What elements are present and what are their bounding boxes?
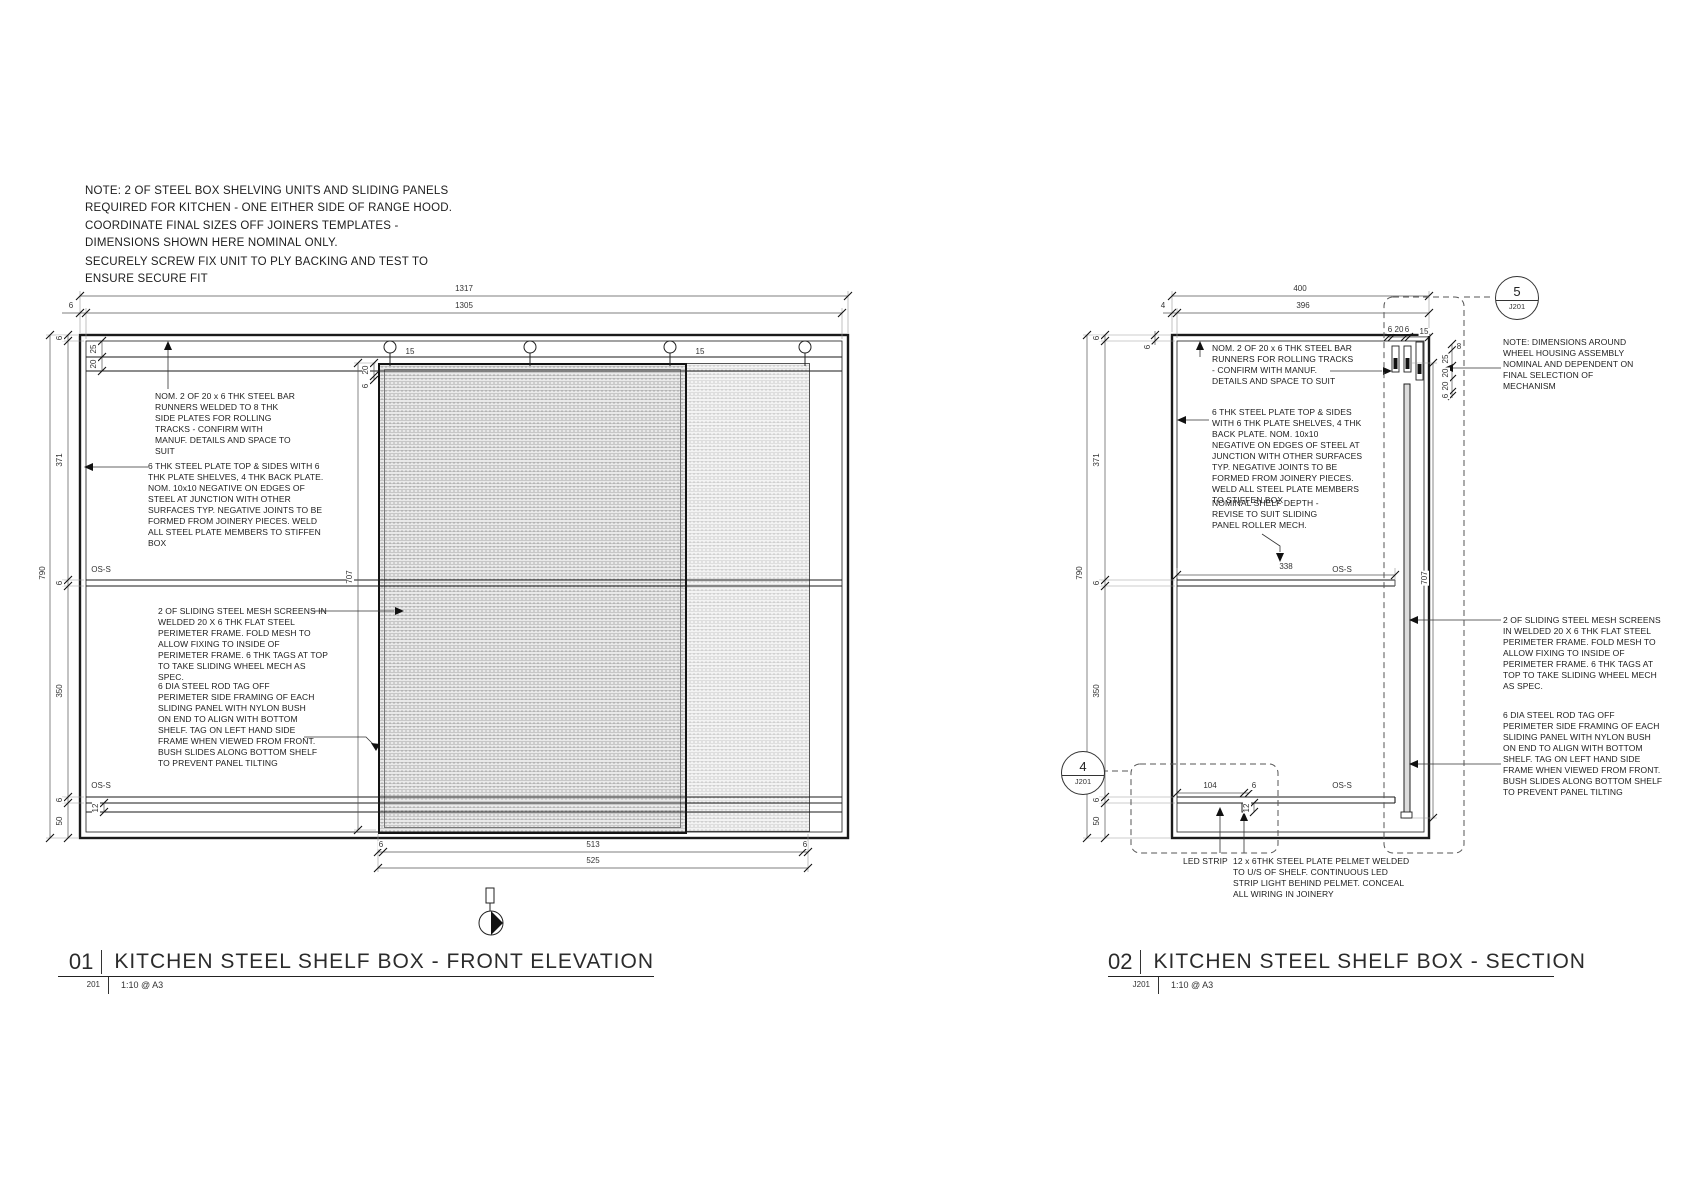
callout-number: 5 [1496, 285, 1538, 301]
drawing-scale: 1:10 @ A3 [1159, 977, 1213, 994]
annotation-rod-tag-section: 6 DIA STEEL ROD TAG OFF PERIMETER SIDE F… [1503, 710, 1665, 798]
panel-bottom-tag [1401, 812, 1412, 818]
title-block-elevation: 01 KITCHEN STEEL SHELF BOX - FRONT ELEVA… [58, 950, 654, 994]
drawing-linework [0, 0, 1684, 1191]
title-block-section: 02 KITCHEN STEEL SHELF BOX - SECTION J20… [1108, 950, 1554, 994]
annotation-mesh-screens-section: 2 OF SLIDING STEEL MESH SCREENS IN WELDE… [1503, 615, 1661, 692]
annotation-shelf-depth: NOMINAL SHELF DEPTH - REVISE TO SUIT SLI… [1212, 498, 1327, 531]
section-marker-fill [491, 911, 503, 935]
general-note: NOTE: 2 OF STEEL BOX SHELVING UNITS AND … [85, 183, 470, 252]
dim-ticks-left [46, 292, 852, 872]
roller-wheels [384, 341, 811, 366]
dim-lines-left [50, 296, 848, 868]
ext-lines-left [46, 291, 848, 872]
drawing-number: 01 [58, 950, 102, 974]
detail-callout-5: 5 J201 [1495, 276, 1539, 320]
annotation-runners: NOM. 2 OF 20 x 6 THK STEEL BAR RUNNERS W… [155, 391, 295, 457]
annotation-rod-tag: 6 DIA STEEL ROD TAG OFF PERIMETER SIDE F… [158, 681, 320, 769]
fixing-note: SECURELY SCREW FIX UNIT TO PLY BACKING A… [85, 254, 470, 289]
callout-number: 4 [1062, 760, 1104, 776]
drawing-scale: 1:10 @ A3 [109, 977, 163, 994]
sliding-panel-edge [1404, 384, 1410, 818]
callout-sheet: J201 [1509, 301, 1525, 311]
drawing-ref: J201 [1108, 977, 1159, 994]
annotation-plate-box: 6 THK STEEL PLATE TOP & SIDES WITH 6 THK… [148, 461, 334, 549]
drawing-title: KITCHEN STEEL SHELF BOX - SECTION [1141, 950, 1585, 974]
annotation-plate-box-section: 6 THK STEEL PLATE TOP & SIDES WITH 6 THK… [1212, 407, 1364, 506]
detail-callout-4: 4 J201 [1061, 751, 1105, 795]
annotation-runners-section: NOM. 2 OF 20 x 6 THK STEEL BAR RUNNERS F… [1212, 343, 1354, 387]
drawing-number: 02 [1108, 950, 1141, 974]
callout-sheet: J201 [1075, 776, 1091, 786]
annotation-wheel-note: NOTE: DIMENSIONS AROUND WHEEL HOUSING AS… [1503, 337, 1641, 392]
drawing-title: KITCHEN STEEL SHELF BOX - FRONT ELEVATIO… [102, 950, 654, 974]
annotation-pelmet: 12 x 6THK STEEL PLATE PELMET WELDED TO U… [1233, 856, 1415, 900]
annotation-mesh-screens: 2 OF SLIDING STEEL MESH SCREENS IN WELDE… [158, 606, 330, 683]
drawing-sheet: NOTE: 2 OF STEEL BOX SHELVING UNITS AND … [0, 0, 1684, 1191]
drawing-ref: 201 [58, 977, 109, 994]
pelmet-plate [1242, 803, 1247, 812]
